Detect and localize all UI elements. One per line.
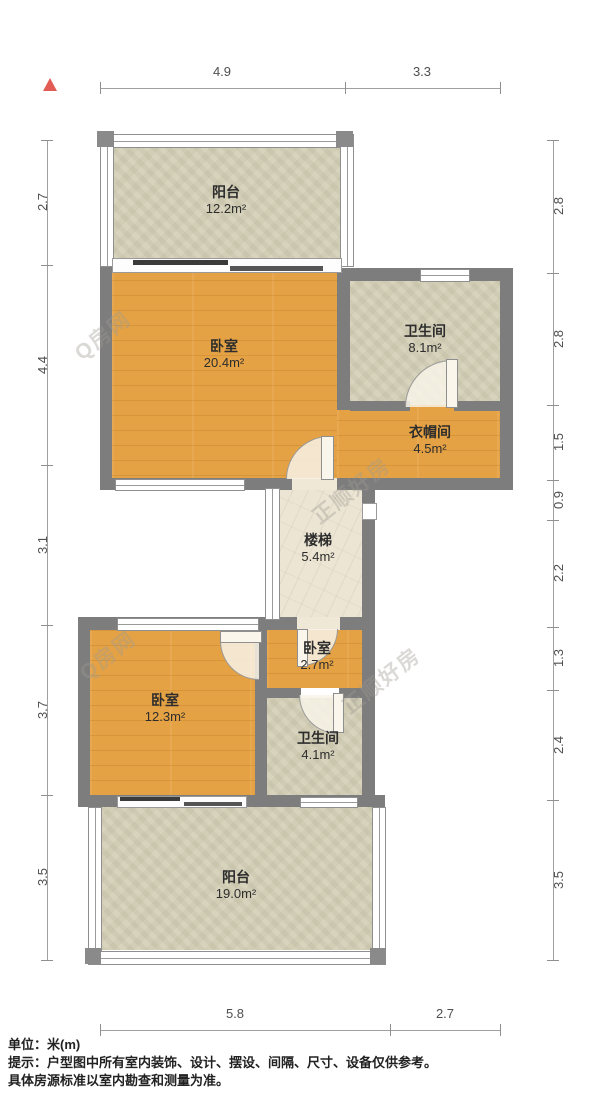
wall-upper-right <box>500 268 513 490</box>
dim-left-3: 3.1 <box>22 525 62 565</box>
stairs-wall-notch <box>362 503 377 520</box>
balcony-bottom-post-right <box>370 948 386 964</box>
dim-tick-bottom-2 <box>390 1024 391 1036</box>
bathroom-lower-window <box>300 797 358 808</box>
bedroom-master-name: 卧室 <box>164 338 284 355</box>
balcony-bottom-rail-left <box>88 807 102 959</box>
bedroom-second-door-leaf <box>220 631 262 643</box>
stairs-area: 5.4m² <box>258 549 378 565</box>
dim-tick-right-5 <box>547 520 559 521</box>
dim-tick-right-1 <box>547 140 559 141</box>
bedroom-mini-area: 2.7m² <box>257 657 377 673</box>
bathroom-top-label: 卫生间 8.1m² <box>365 323 485 356</box>
bedroom-master-window <box>115 479 245 491</box>
dim-right-3: 1.5 <box>538 422 578 462</box>
balcony-bottom-sliding-door-panel-1 <box>120 797 180 801</box>
dim-left-5: 3.5 <box>22 857 62 897</box>
bedroom-second-label: 卧室 12.3m² <box>105 692 225 725</box>
wall-lower-left <box>78 617 90 807</box>
balcony-top-rail-left <box>100 134 114 267</box>
wall-upper-left <box>100 258 112 490</box>
dim-tick-left-2 <box>41 265 53 266</box>
dim-tick-top-1 <box>100 82 101 94</box>
dim-right-2: 2.8 <box>538 319 578 359</box>
balcony-bottom-name: 阳台 <box>176 869 296 886</box>
dim-left-1: 2.7 <box>22 182 62 222</box>
dim-tick-bottom-3 <box>500 1024 501 1036</box>
dim-line-right <box>553 140 554 960</box>
dim-right-8: 3.5 <box>538 860 578 900</box>
wall-minibed-bath-left <box>267 688 301 698</box>
stairs-label: 楼梯 5.4m² <box>258 532 378 565</box>
wall-bath-cloak-left <box>350 401 410 411</box>
dim-bottom-1: 5.8 <box>205 1006 265 1021</box>
dim-right-5: 2.2 <box>538 553 578 593</box>
dim-tick-top-2 <box>345 82 346 94</box>
bedroom-mini-label: 卧室 2.7m² <box>257 640 377 673</box>
footer-note-line-2: 具体房源标准以室内勘查和测量为准。 <box>8 1072 592 1090</box>
wall-bath-cloak-right <box>454 401 500 411</box>
bedroom-master-area: 20.4m² <box>164 355 284 371</box>
dim-tick-right-2 <box>547 273 559 274</box>
dim-tick-top-3 <box>500 82 501 94</box>
balcony-top-rail-right <box>340 134 354 267</box>
dim-tick-right-7 <box>547 690 559 691</box>
dim-right-7: 2.4 <box>538 725 578 765</box>
bedroom-second-area: 12.3m² <box>105 709 225 725</box>
dim-line-top <box>100 88 500 89</box>
dim-bottom-2: 2.7 <box>415 1006 475 1021</box>
balcony-bottom-area: 19.0m² <box>176 886 296 902</box>
balcony-top-sliding-door-panel-2 <box>230 266 323 271</box>
wall-bedroom-bathroom-divider <box>337 268 350 410</box>
dim-right-6: 1.3 <box>538 638 578 678</box>
bathroom-lower-label: 卫生间 4.1m² <box>258 730 378 763</box>
bedroom-second-window <box>117 618 259 631</box>
bathroom-top-door-leaf <box>446 359 458 408</box>
footer-disclaimer: 单位：米(m) 提示：户型图中所有室内装饰、设计、摆设、间隔、尺寸、设备仅供参考… <box>8 1036 592 1090</box>
dim-top-1: 4.9 <box>192 64 252 79</box>
dim-tick-right-8 <box>547 800 559 801</box>
balcony-bottom-rail-bottom <box>88 951 386 965</box>
balcony-top-rail-top <box>100 134 354 148</box>
dim-line-bottom <box>100 1030 500 1031</box>
dim-tick-left-4 <box>41 625 53 626</box>
cloakroom-area: 4.5m² <box>370 441 490 457</box>
dim-tick-left-3 <box>41 465 53 466</box>
bedroom-mini-name: 卧室 <box>257 640 377 657</box>
dim-right-4: 0.9 <box>538 480 578 520</box>
balcony-top-area: 12.2m² <box>166 201 286 217</box>
balcony-bottom-sliding-door-panel-2 <box>184 802 242 806</box>
dim-top-2: 3.3 <box>392 64 452 79</box>
balcony-top-sliding-door-panel-1 <box>133 260 228 265</box>
cloakroom-name: 衣帽间 <box>370 424 490 441</box>
footer-unit-line: 单位：米(m) <box>8 1036 592 1054</box>
dim-tick-bottom-1 <box>100 1024 101 1036</box>
balcony-top-post-right <box>336 131 353 147</box>
bathroom-top-area: 8.1m² <box>365 340 485 356</box>
dim-tick-right-6 <box>547 627 559 628</box>
stairwell-door-leaf <box>321 436 334 480</box>
footer-note-line-1: 提示：户型图中所有室内装饰、设计、摆设、间隔、尺寸、设备仅供参考。 <box>8 1054 592 1072</box>
balcony-top-post-left <box>97 131 114 147</box>
bathroom-lower-name: 卫生间 <box>258 730 378 747</box>
bathroom-top-name: 卫生间 <box>365 323 485 340</box>
floor-plan-canvas: Q房网 Q房网 正顺好房 正顺好房 阳台 12.2m² 卧室 20.4m² 卫生… <box>0 0 600 1109</box>
dim-tick-right-9 <box>547 960 559 961</box>
dim-tick-left-1 <box>41 140 53 141</box>
balcony-bottom-post-left <box>85 948 101 964</box>
balcony-bottom-label: 阳台 19.0m² <box>176 869 296 902</box>
balcony-top-name: 阳台 <box>166 184 286 201</box>
balcony-top-label: 阳台 12.2m² <box>166 184 286 217</box>
bathroom-top-window <box>420 269 470 282</box>
dim-left-4: 3.7 <box>22 690 62 730</box>
north-arrow-icon <box>43 78 57 91</box>
dim-tick-left-6 <box>41 960 53 961</box>
cloakroom-label: 衣帽间 4.5m² <box>370 424 490 457</box>
balcony-bottom-rail-right <box>372 807 386 959</box>
bedroom-second-name: 卧室 <box>105 692 225 709</box>
bathroom-lower-area: 4.1m² <box>258 747 378 763</box>
stairs-name: 楼梯 <box>258 532 378 549</box>
bedroom-master-label: 卧室 20.4m² <box>164 338 284 371</box>
dim-tick-right-3 <box>547 405 559 406</box>
dim-right-1: 2.8 <box>538 186 578 226</box>
dim-left-2: 4.4 <box>22 345 62 385</box>
dim-tick-left-5 <box>41 795 53 796</box>
